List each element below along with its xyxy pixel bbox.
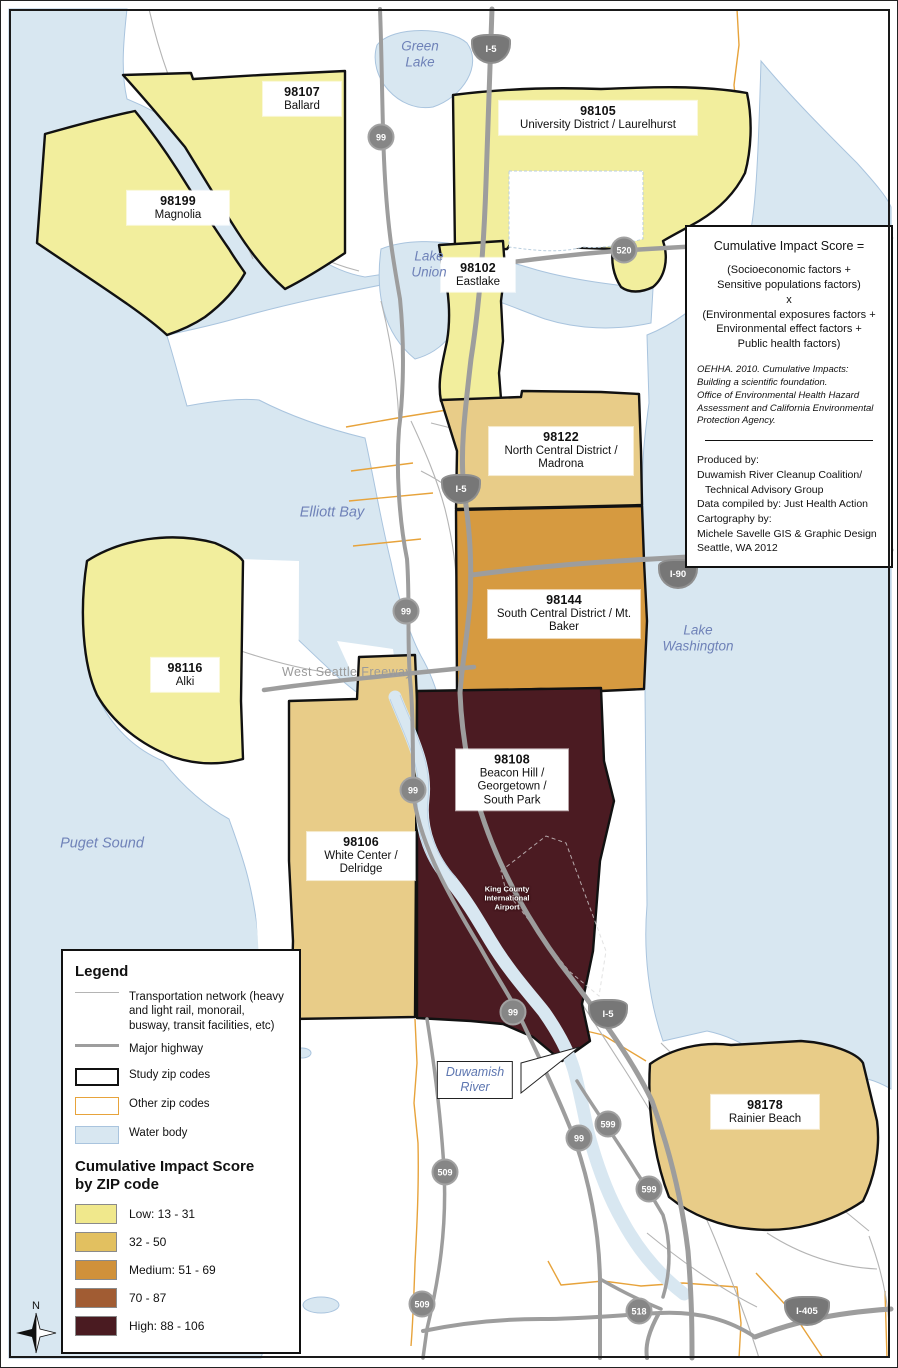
thick-line-swatch bbox=[75, 1044, 119, 1047]
zip-label-98178: 98178 Rainier Beach bbox=[711, 1095, 819, 1129]
zip-name: Eastlake bbox=[447, 276, 509, 290]
info-box-divider bbox=[705, 440, 873, 441]
highway-shield-509-b: 509 bbox=[409, 1291, 436, 1318]
water-label-lake-union: Lake Union bbox=[411, 248, 446, 279]
highway-shield-99-mid1: 99 bbox=[393, 598, 420, 625]
legend-item-other-zip: Other zip codes bbox=[75, 1095, 287, 1115]
river-label-duwamish: Duwamish River bbox=[437, 1061, 513, 1099]
legend-class-2: 32 - 50 bbox=[75, 1232, 287, 1252]
zip-label-98102: 98102 Eastlake bbox=[441, 258, 515, 292]
class-2-swatch bbox=[75, 1232, 117, 1252]
zip-name: Ballard bbox=[269, 100, 335, 114]
zip-label-98105: 98105 University District / Laurelhurst bbox=[499, 101, 697, 135]
class-high-swatch bbox=[75, 1316, 117, 1336]
zip-code: 98199 bbox=[133, 194, 223, 209]
highway-shield-520: 520 bbox=[611, 237, 638, 264]
impact-score-info-box: Cumulative Impact Score = (Socioeconomic… bbox=[685, 225, 893, 568]
legend-class-medium: Medium: 51 - 69 bbox=[75, 1260, 287, 1280]
zip-code: 98102 bbox=[447, 261, 509, 276]
info-box-formula: (Socioeconomic factors + Sensitive popul… bbox=[697, 263, 881, 352]
zip-name: Magnolia bbox=[133, 209, 223, 223]
info-box-credits: Produced by: Duwamish River Cleanup Coal… bbox=[697, 453, 881, 556]
zip-label-98122: 98122 North Central District / Madrona bbox=[489, 427, 633, 475]
legend: Legend Transportation network (heavy and… bbox=[61, 949, 301, 1354]
zip-name: White Center / Delridge bbox=[313, 850, 409, 877]
highway-shield-99-south2: 99 bbox=[566, 1125, 593, 1152]
water-label-elliott-bay: Elliott Bay bbox=[300, 505, 364, 522]
zip-code: 98122 bbox=[495, 430, 627, 445]
water-label-lake-washington: Lake Washington bbox=[662, 622, 733, 653]
legend-item-water-body: Water body bbox=[75, 1124, 287, 1144]
zip-label-98108: 98108 Beacon Hill / Georgetown / South P… bbox=[456, 749, 568, 810]
legend-class-low: Low: 13 - 31 bbox=[75, 1204, 287, 1224]
highway-shield-99-north: 99 bbox=[368, 124, 395, 151]
highway-shield-99-mid2: 99 bbox=[400, 777, 427, 804]
water-label-puget-sound: Puget Sound bbox=[60, 836, 144, 853]
info-box-title: Cumulative Impact Score = bbox=[697, 239, 881, 253]
zip-code: 98144 bbox=[494, 593, 634, 608]
zip-label-98144: 98144 South Central District / Mt. Baker bbox=[488, 590, 640, 638]
highway-shield-518: 518 bbox=[626, 1298, 653, 1325]
zip-label-98199: 98199 Magnolia bbox=[127, 191, 229, 225]
zip-98178-rainier-beach bbox=[649, 1041, 878, 1230]
map-page: 98107 Ballard 98105 University District … bbox=[0, 0, 898, 1368]
legend-item-major-highway: Major highway bbox=[75, 1042, 287, 1056]
water-body-swatch bbox=[75, 1126, 119, 1144]
zip-label-98107: 98107 Ballard bbox=[263, 82, 341, 116]
zip-code: 98106 bbox=[313, 835, 409, 850]
highway-shield-599-b: 599 bbox=[636, 1176, 663, 1203]
zip-code: 98108 bbox=[462, 752, 562, 767]
zip-name: South Central District / Mt. Baker bbox=[494, 608, 634, 635]
legend-title: Legend bbox=[75, 963, 287, 980]
zip-name: University District / Laurelhurst bbox=[505, 119, 691, 133]
freeway-label: West Seattle Freeway bbox=[282, 665, 412, 679]
highway-shield-509-a: 509 bbox=[432, 1159, 459, 1186]
zip-name: Beacon Hill / Georgetown / South Park bbox=[462, 767, 562, 808]
other-zip-swatch bbox=[75, 1097, 119, 1115]
zip-code: 98105 bbox=[505, 104, 691, 119]
zip-code: 98107 bbox=[269, 85, 335, 100]
legend-class-high: High: 88 - 106 bbox=[75, 1316, 287, 1336]
zip-name: Alki bbox=[157, 676, 213, 690]
highway-shield-99-south1: 99 bbox=[500, 999, 527, 1026]
thin-line-swatch bbox=[75, 992, 119, 993]
airport-label: King County International Airport bbox=[484, 885, 529, 912]
legend-score-title: Cumulative Impact Score by ZIP code bbox=[75, 1158, 287, 1194]
legend-item-study-zip: Study zip codes bbox=[75, 1066, 287, 1086]
zip-code: 98116 bbox=[157, 661, 213, 676]
class-4-swatch bbox=[75, 1288, 117, 1308]
zip-label-98106: 98106 White Center / Delridge bbox=[307, 832, 415, 880]
info-box-citation: OEHHA. 2010. Cumulative Impacts: Buildin… bbox=[697, 364, 881, 428]
class-low-swatch bbox=[75, 1204, 117, 1224]
zip-code: 98178 bbox=[717, 1098, 813, 1113]
zip-name: North Central District / Madrona bbox=[495, 445, 627, 472]
water-label-green-lake: Green Lake bbox=[401, 38, 439, 69]
north-label: N bbox=[32, 1300, 40, 1312]
highway-shield-599-a: 599 bbox=[595, 1111, 622, 1138]
legend-class-4: 70 - 87 bbox=[75, 1288, 287, 1308]
class-medium-swatch bbox=[75, 1260, 117, 1280]
zip-name: Rainier Beach bbox=[717, 1113, 813, 1127]
legend-item-transportation: Transportation network (heavy and light … bbox=[75, 990, 287, 1033]
zip-label-98116: 98116 Alki bbox=[151, 658, 219, 692]
study-zip-swatch bbox=[75, 1068, 119, 1086]
